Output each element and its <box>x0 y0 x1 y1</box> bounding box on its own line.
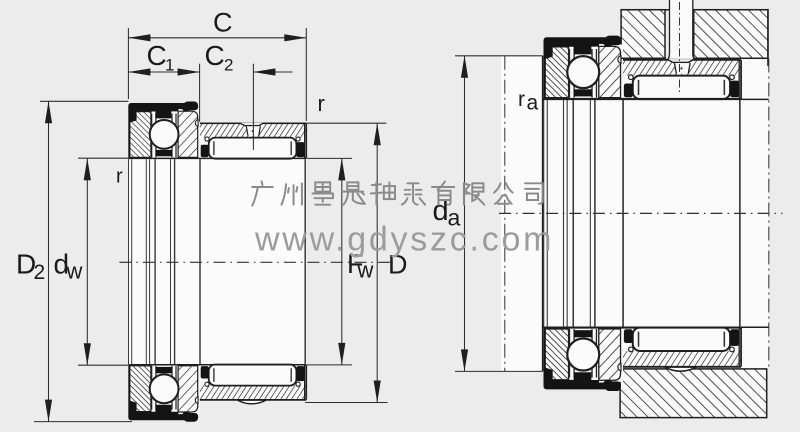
svg-text:r: r <box>116 166 123 188</box>
svg-text:www.gdyszc.com: www.gdyszc.com <box>254 221 554 259</box>
svg-text:C: C <box>205 40 225 71</box>
svg-text:C: C <box>213 7 233 37</box>
svg-text:2: 2 <box>224 56 233 75</box>
svg-text:w: w <box>66 259 83 284</box>
svg-text:C: C <box>147 40 167 71</box>
svg-text:1: 1 <box>165 56 174 75</box>
svg-text:2: 2 <box>34 261 46 284</box>
svg-text:w: w <box>357 258 374 283</box>
svg-text:r: r <box>518 88 525 111</box>
svg-text:a: a <box>527 92 539 115</box>
svg-text:r: r <box>318 91 325 116</box>
